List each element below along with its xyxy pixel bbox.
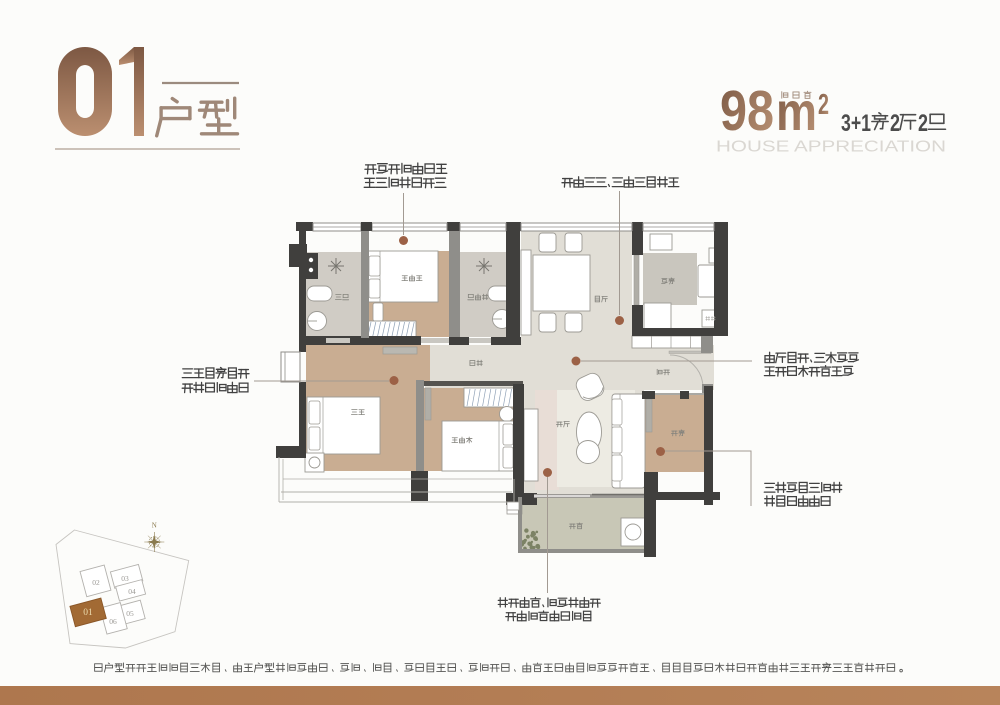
svg-text:2: 2 [890,110,900,137]
svg-text:2: 2 [818,89,829,121]
svg-text:3+1: 3+1 [841,110,871,137]
svg-text:05: 05 [126,609,134,618]
svg-text:m: m [776,82,817,142]
svg-text:98: 98 [720,79,774,143]
svg-text:02: 02 [92,578,100,587]
svg-text:01: 01 [83,608,93,618]
svg-text:N: N [152,522,157,530]
svg-text:2: 2 [918,110,928,137]
svg-text:HOUSE APPRECIATION: HOUSE APPRECIATION [716,139,946,156]
svg-text:06: 06 [109,617,117,626]
svg-text:04: 04 [128,587,136,596]
svg-text:03: 03 [121,574,129,583]
